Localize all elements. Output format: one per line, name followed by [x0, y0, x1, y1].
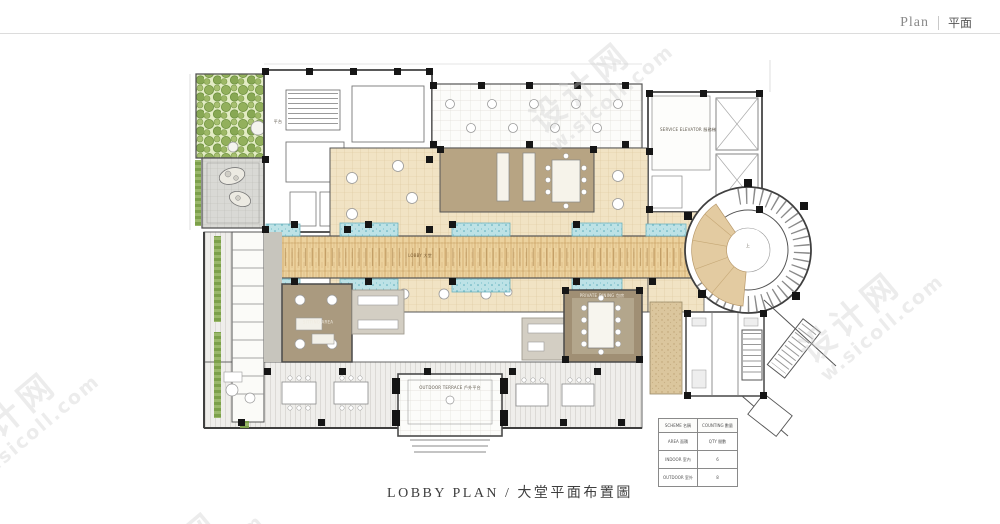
legend-cell: 6 [697, 451, 737, 469]
legend-cell: SCHEME 名稱 [659, 419, 698, 433]
room-label-lobby: LOBBY 大堂 [408, 253, 432, 259]
room-label-sitting: SITTING AREA [303, 320, 333, 325]
top-terrace [432, 84, 642, 148]
room-label-service: SERVICE ELEVATOR 服務梯 [660, 127, 716, 133]
page: Plan 平面 [0, 0, 1000, 524]
legend-cell: COUNTING 數量 [697, 419, 737, 433]
stone-courtyard [195, 158, 264, 228]
sand-carpet [650, 302, 682, 394]
legend-cell: 8 [697, 469, 737, 487]
bar-lounge-room [440, 148, 594, 212]
private-dining-room [564, 290, 642, 362]
legend-cell: QTY 間數 [697, 433, 737, 451]
room-label-terrace: 平台 [274, 119, 282, 125]
legend-cell: INDOOR 室內 [659, 451, 698, 469]
room-label-rotunda: 上 [746, 243, 750, 249]
central-corridor [256, 236, 708, 278]
legend-cell: OUTDOOR 室外 [659, 469, 698, 487]
floor-plan-drawing [0, 0, 1000, 524]
room-label-dining: PRIVATE DINING 包房 [580, 293, 625, 299]
room-label-portico: OUTDOOR TERRACE 戶外平台 [419, 385, 481, 391]
legend-table: SCHEME 名稱 COUNTING 數量 AREA 面積 QTY 間數 IND… [658, 418, 738, 487]
legend-cell: AREA 面積 [659, 433, 698, 451]
